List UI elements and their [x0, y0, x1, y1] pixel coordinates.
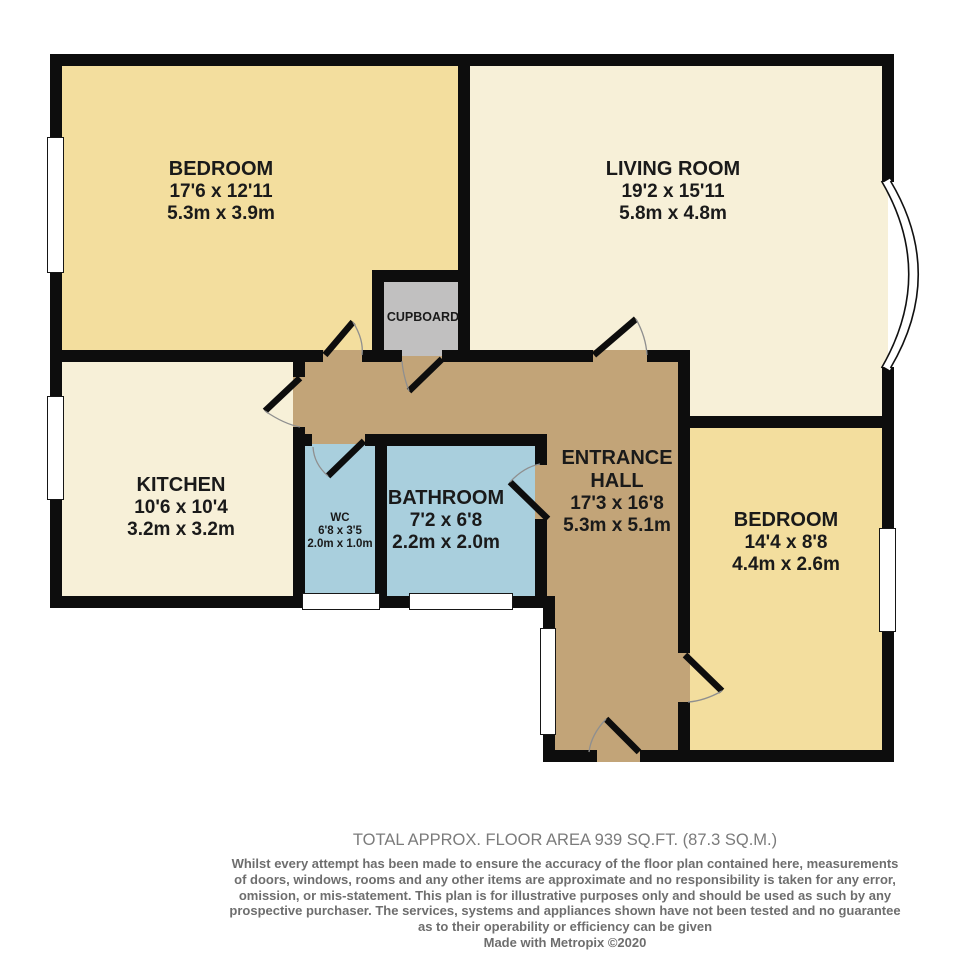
- window-bedroom1-left: [47, 137, 64, 273]
- room-name: LIVING ROOM: [573, 158, 773, 181]
- room-label-hall: ENTRANCE HALL 17'3 x 16'8 5.3m x 5.1m: [547, 447, 687, 537]
- window-wc-bottom: [302, 593, 380, 610]
- window-hall-left: [540, 628, 556, 735]
- room-name: BEDROOM: [121, 158, 321, 181]
- bay-window-glass: [886, 181, 914, 368]
- floor-plan: BEDROOM 17'6 x 12'11 5.3m x 3.9m LIVING …: [0, 0, 980, 820]
- room-dims-imperial: 14'4 x 8'8: [686, 532, 886, 554]
- metropix-credit: Made with Metropix ©2020: [190, 935, 940, 951]
- wall-wc-top-a: [293, 434, 312, 446]
- room-name: ENTRANCE HALL: [547, 447, 687, 493]
- total-floor-area: TOTAL APPROX. FLOOR AREA 939 SQ.FT. (87.…: [190, 830, 940, 850]
- room-name: BATHROOM: [346, 487, 546, 510]
- room-fill-living-lower: [684, 300, 888, 424]
- room-label-living: LIVING ROOM 19'2 x 15'11 5.8m x 4.8m: [573, 158, 773, 225]
- room-dims-metric: 5.3m x 3.9m: [121, 203, 321, 225]
- room-label-cupboard: CUPBOARD: [373, 310, 473, 324]
- wall-bath-right-a: [535, 434, 547, 465]
- room-dims-metric: 4.4m x 2.6m: [686, 554, 886, 576]
- room-dims-imperial: 10'6 x 10'4: [81, 497, 281, 519]
- bay-window-outer-edge: [891, 181, 919, 368]
- room-label-bathroom: BATHROOM 7'2 x 6'8 2.2m x 2.0m: [346, 487, 546, 554]
- wall-corridor-top-c: [442, 350, 593, 362]
- disclaimer-line: omission, or mis-statement. This plan is…: [190, 888, 940, 904]
- room-label-bedroom1: BEDROOM 17'6 x 12'11 5.3m x 3.9m: [121, 158, 321, 225]
- wall-top: [50, 54, 894, 66]
- wall-right-a: [882, 54, 894, 182]
- room-name: BEDROOM: [686, 509, 886, 532]
- room-dims-imperial: 17'3 x 16'8: [547, 493, 687, 515]
- wall-hall-left-a: [543, 596, 555, 628]
- room-dims-metric: 3.2m x 3.2m: [81, 519, 281, 541]
- wall-right-c: [882, 632, 894, 762]
- disclaimer-line: of doors, windows, rooms and any other i…: [190, 872, 940, 888]
- disclaimer-line: prospective purchaser. The services, sys…: [190, 903, 940, 919]
- footer: TOTAL APPROX. FLOOR AREA 939 SQ.FT. (87.…: [190, 830, 940, 951]
- room-fill-hall-corridor: [293, 350, 688, 444]
- disclaimer-line: Whilst every attempt has been made to en…: [190, 856, 940, 872]
- room-fill-bedroom2: [690, 424, 888, 756]
- room-fill-hall-lower: [548, 596, 690, 762]
- room-dims-metric: 5.8m x 4.8m: [573, 203, 773, 225]
- room-name: KITCHEN: [81, 474, 281, 497]
- floorplan-page: { "colors": { "wall": "#0d0d0d", "yellow…: [0, 0, 980, 956]
- room-dims-metric: 5.3m x 5.1m: [547, 515, 687, 537]
- wall-right-b: [882, 367, 894, 528]
- room-dims-metric: 2.2m x 2.0m: [346, 532, 546, 554]
- wall-corridor-top-d: [647, 350, 678, 362]
- room-dims-imperial: 17'6 x 12'11: [121, 181, 321, 203]
- disclaimer-line: as to their operability or efficiency ca…: [190, 919, 940, 935]
- room-label-kitchen: KITCHEN 10'6 x 10'4 3.2m x 3.2m: [81, 474, 281, 541]
- wall-bottom-bed2: [640, 750, 894, 762]
- wall-wet-top-b: [365, 434, 547, 446]
- room-name: CUPBOARD: [387, 310, 459, 324]
- window-bathroom-bottom: [409, 593, 513, 610]
- wall-kitchen-right-a: [293, 362, 305, 377]
- room-dims-imperial: 7'2 x 6'8: [346, 510, 546, 532]
- window-kitchen-left: [47, 396, 64, 500]
- wall-cupboard-top: [372, 270, 470, 282]
- wall-living-bottom: [678, 416, 894, 428]
- room-label-bedroom2: BEDROOM 14'4 x 8'8 4.4m x 2.6m: [686, 509, 886, 576]
- wall-bottom-hall: [543, 750, 597, 762]
- room-dims-imperial: 19'2 x 15'11: [573, 181, 773, 203]
- wall-corridor-top-a: [50, 350, 323, 362]
